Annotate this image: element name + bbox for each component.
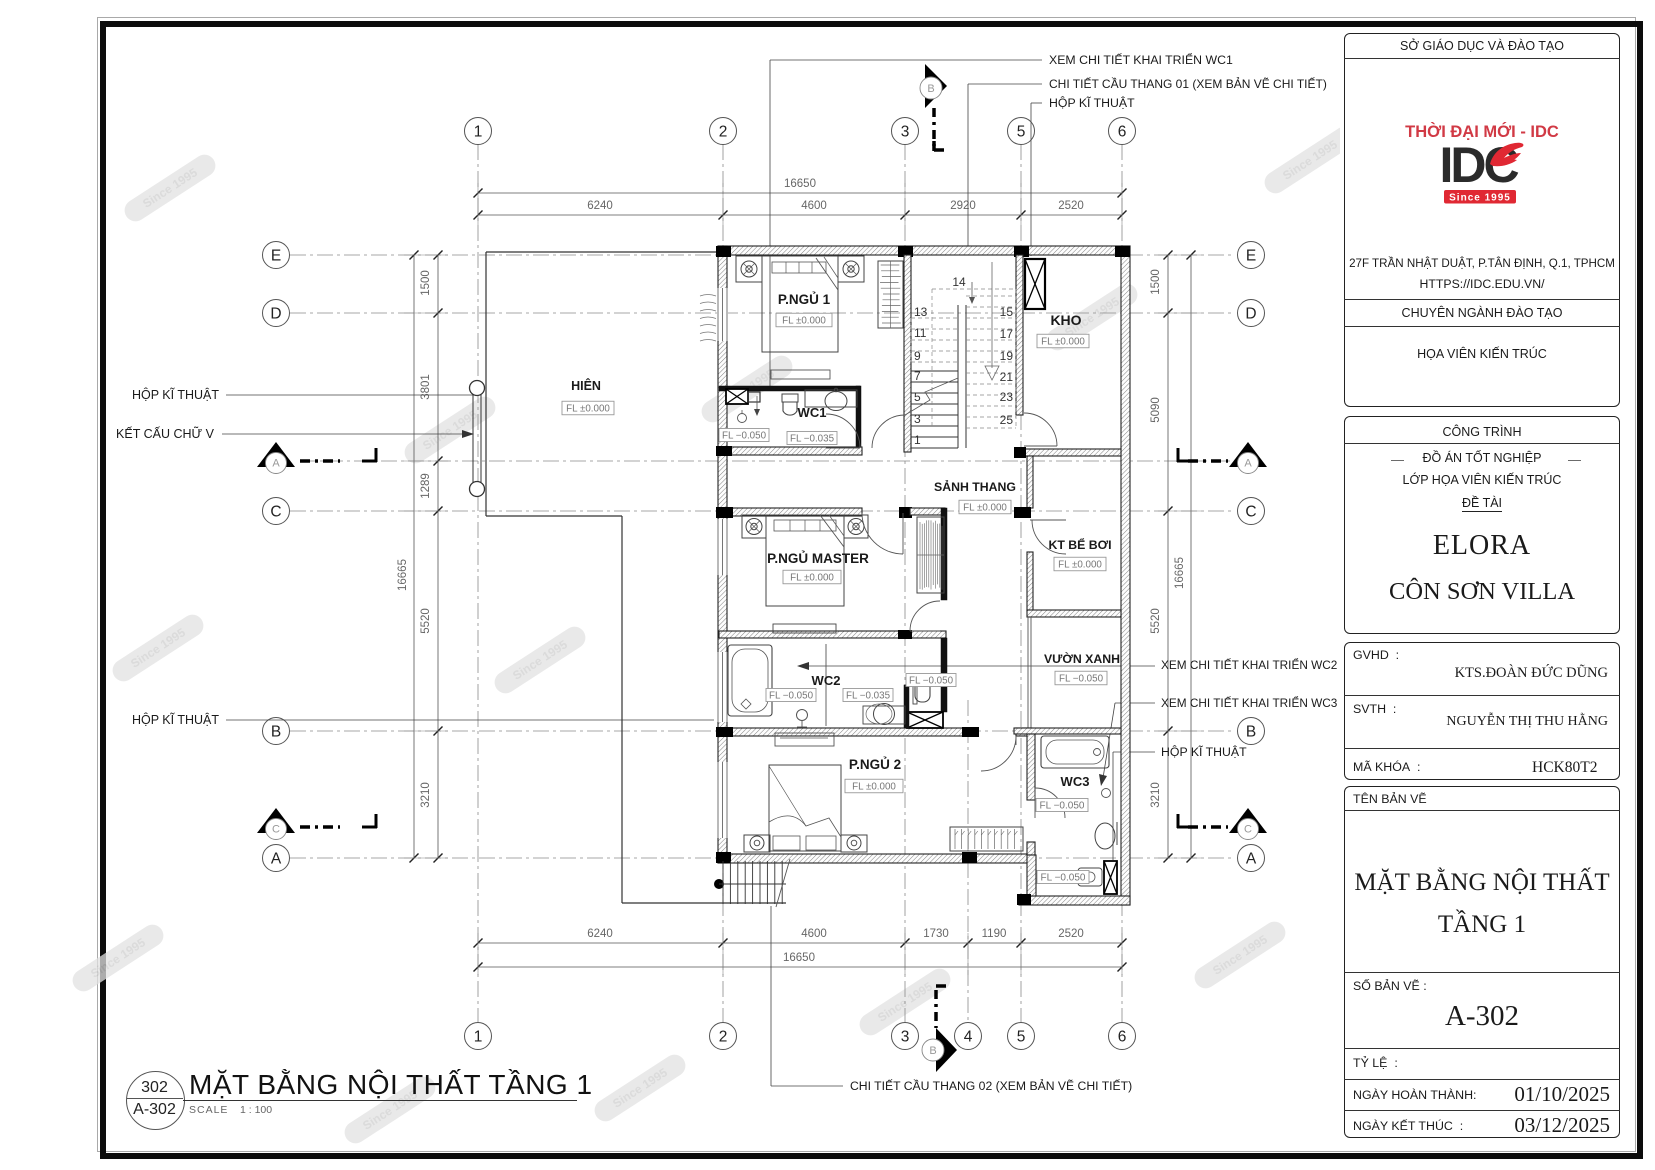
svg-text:D: D xyxy=(270,306,281,323)
svg-text:25: 25 xyxy=(1000,413,1014,427)
svg-text:4600: 4600 xyxy=(801,200,827,212)
svg-text:XEM CHI TIẾT KHAI TRIỂN WC2: XEM CHI TIẾT KHAI TRIỂN WC2 xyxy=(1161,658,1337,672)
svg-text:A: A xyxy=(1244,458,1252,470)
svg-text:HỘP KĨ THUẬT: HỘP KĨ THUẬT xyxy=(1161,744,1247,759)
svg-text:KHO: KHO xyxy=(1050,312,1081,328)
svg-text:FL ±0.000: FL ±0.000 xyxy=(852,782,896,793)
svg-text:2: 2 xyxy=(719,124,728,141)
svg-text:2520: 2520 xyxy=(1058,928,1084,940)
svg-text:FL −0.035: FL −0.035 xyxy=(790,434,835,445)
svg-text:3: 3 xyxy=(901,1029,910,1046)
svg-text:9: 9 xyxy=(914,349,921,363)
svg-text:FL −0.050: FL −0.050 xyxy=(1059,674,1104,685)
svg-text:HIÊN: HIÊN xyxy=(571,378,601,393)
svg-text:1730: 1730 xyxy=(923,928,949,940)
svg-text:23: 23 xyxy=(1000,390,1014,404)
svg-text:16650: 16650 xyxy=(784,178,816,190)
svg-text:B: B xyxy=(927,83,934,95)
svg-text:5: 5 xyxy=(914,390,921,404)
svg-text:FL ±0.000: FL ±0.000 xyxy=(790,573,834,584)
svg-text:2: 2 xyxy=(719,1029,728,1046)
svg-text:6: 6 xyxy=(1118,124,1127,141)
svg-text:11: 11 xyxy=(914,326,927,340)
svg-text:3: 3 xyxy=(914,412,921,426)
svg-text:2920: 2920 xyxy=(950,200,976,212)
svg-text:FL −0.035: FL −0.035 xyxy=(846,691,891,702)
svg-text:SẢNH THANG: SẢNH THANG xyxy=(934,479,1016,494)
svg-text:Since 1995: Since 1995 xyxy=(510,637,570,683)
svg-text:A: A xyxy=(271,851,282,868)
svg-text:KT BỂ BƠI: KT BỂ BƠI xyxy=(1048,537,1111,552)
svg-text:14: 14 xyxy=(952,275,966,289)
svg-text:HỘP KĨ THUẬT: HỘP KĨ THUẬT xyxy=(132,387,219,402)
svg-text:5: 5 xyxy=(1017,1029,1026,1046)
svg-text:Since 1995: Since 1995 xyxy=(128,625,188,671)
svg-text:5520: 5520 xyxy=(420,608,432,634)
svg-text:16665: 16665 xyxy=(397,559,409,591)
svg-text:XEM CHI TIẾT KHAI TRIỂN WC1: XEM CHI TIẾT KHAI TRIỂN WC1 xyxy=(1049,52,1233,67)
svg-text:P.NGỦ 1: P.NGỦ 1 xyxy=(778,292,831,307)
svg-text:15: 15 xyxy=(1000,305,1014,319)
svg-text:D: D xyxy=(1245,306,1256,323)
svg-text:6240: 6240 xyxy=(587,928,613,940)
svg-text:3801: 3801 xyxy=(420,374,432,400)
svg-text:Since 1995: Since 1995 xyxy=(1280,137,1340,183)
svg-text:P.NGỦ 2: P.NGỦ 2 xyxy=(849,757,901,772)
svg-text:C: C xyxy=(270,504,281,521)
svg-text:WC1: WC1 xyxy=(798,405,827,420)
svg-text:6: 6 xyxy=(1118,1029,1127,1046)
svg-text:FL ±0.000: FL ±0.000 xyxy=(1041,337,1085,348)
svg-text:5520: 5520 xyxy=(1150,608,1162,634)
svg-text:2520: 2520 xyxy=(1058,200,1084,212)
svg-text:FL −0.050: FL −0.050 xyxy=(1040,801,1085,812)
svg-text:1190: 1190 xyxy=(982,928,1007,940)
svg-text:P.NGỦ MASTER: P.NGỦ MASTER xyxy=(767,551,869,566)
svg-text:13: 13 xyxy=(914,305,928,319)
svg-text:E: E xyxy=(1246,248,1256,265)
svg-text:A: A xyxy=(1246,851,1257,868)
svg-text:16650: 16650 xyxy=(783,952,815,964)
svg-text:1289: 1289 xyxy=(420,473,432,499)
svg-text:5: 5 xyxy=(1017,124,1026,141)
svg-text:B: B xyxy=(1246,724,1256,741)
svg-text:Since 1995: Since 1995 xyxy=(1449,193,1511,204)
svg-text:XEM CHI TIẾT KHAI TRIỂN WC3: XEM CHI TIẾT KHAI TRIỂN WC3 xyxy=(1161,696,1338,710)
svg-text:B: B xyxy=(271,724,281,741)
svg-text:KẾT CẤU CHỮ V: KẾT CẤU CHỮ V xyxy=(116,426,215,441)
svg-text:FL ±0.000: FL ±0.000 xyxy=(566,404,610,415)
svg-text:3: 3 xyxy=(901,124,910,141)
svg-text:HỘP KĨ THUẬT: HỘP KĨ THUẬT xyxy=(1049,95,1135,110)
svg-text:FL ±0.000: FL ±0.000 xyxy=(1058,560,1102,571)
svg-text:Since 1995: Since 1995 xyxy=(610,1065,670,1111)
svg-text:17: 17 xyxy=(1000,327,1014,341)
svg-text:E: E xyxy=(271,248,281,265)
svg-text:1500: 1500 xyxy=(420,270,432,296)
svg-text:FL ±0.000: FL ±0.000 xyxy=(963,503,1007,514)
svg-text:C: C xyxy=(1244,824,1252,836)
svg-text:Since 1995: Since 1995 xyxy=(420,407,480,453)
svg-text:4: 4 xyxy=(964,1029,973,1046)
svg-text:1500: 1500 xyxy=(1150,269,1162,295)
svg-text:6240: 6240 xyxy=(587,200,613,212)
svg-text:WC2: WC2 xyxy=(812,673,841,688)
svg-text:HỘP KĨ THUẬT: HỘP KĨ THUẬT xyxy=(132,712,219,727)
svg-text:19: 19 xyxy=(1000,349,1014,363)
svg-text:Since 1995: Since 1995 xyxy=(88,935,148,981)
svg-text:21: 21 xyxy=(1000,370,1014,384)
svg-text:7: 7 xyxy=(914,369,921,383)
svg-text:Since 1995: Since 1995 xyxy=(140,165,200,211)
svg-text:C: C xyxy=(272,824,280,836)
svg-text:FL −0.050: FL −0.050 xyxy=(722,431,767,442)
svg-text:1: 1 xyxy=(914,433,921,447)
svg-text:5090: 5090 xyxy=(1150,397,1162,423)
svg-text:1: 1 xyxy=(474,1029,483,1046)
svg-text:VƯỜN XANH: VƯỜN XANH xyxy=(1044,651,1120,666)
svg-text:FL −0.050: FL −0.050 xyxy=(909,676,954,687)
svg-text:CHI TIẾT CẦU THANG 01 (XEM BẢN: CHI TIẾT CẦU THANG 01 (XEM BẢN VẼ CHI TI… xyxy=(1049,76,1327,91)
svg-text:4600: 4600 xyxy=(801,928,827,940)
svg-text:FL −0.050: FL −0.050 xyxy=(769,691,814,702)
svg-text:WC3: WC3 xyxy=(1061,774,1090,789)
svg-text:C: C xyxy=(1245,504,1256,521)
svg-text:B: B xyxy=(929,1045,936,1057)
svg-text:16665: 16665 xyxy=(1174,557,1186,589)
svg-text:FL ±0.000: FL ±0.000 xyxy=(782,316,826,327)
svg-text:A: A xyxy=(272,458,280,470)
svg-text:1: 1 xyxy=(474,124,483,141)
svg-text:CHI TIẾT CẦU THANG 02 (XEM BẢN: CHI TIẾT CẦU THANG 02 (XEM BẢN VẼ CHI TI… xyxy=(850,1078,1132,1093)
svg-text:Since 1995: Since 1995 xyxy=(1210,932,1270,978)
svg-text:3210: 3210 xyxy=(420,782,432,808)
svg-text:FL −0.050: FL −0.050 xyxy=(1041,873,1086,884)
svg-text:3210: 3210 xyxy=(1150,782,1162,808)
